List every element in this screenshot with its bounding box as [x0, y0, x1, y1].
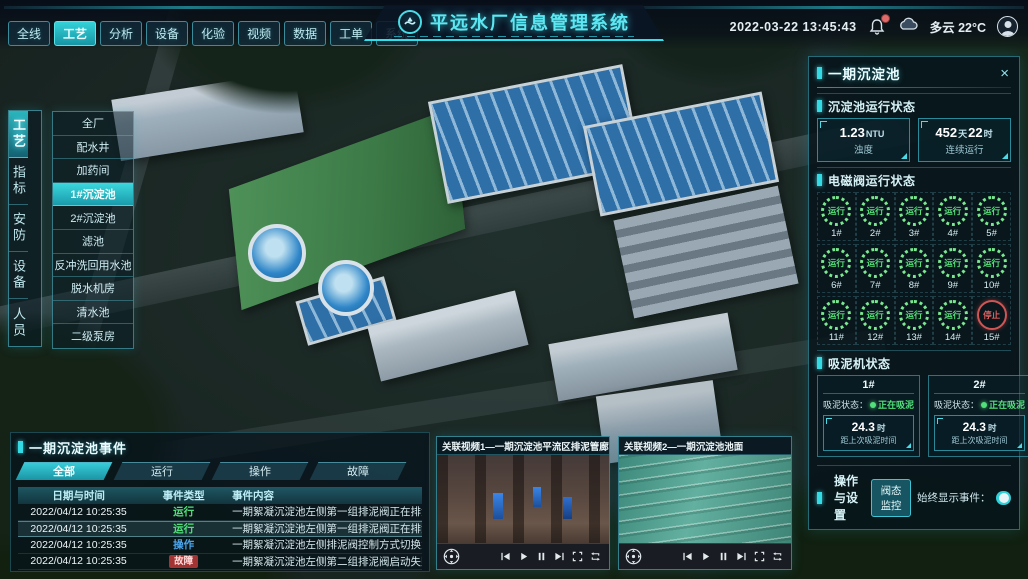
mud-machine-card: 1# 吸泥状态： 正在吸泥 24.3时 距上次吸泥时间	[817, 375, 920, 457]
event-filter-tab[interactable]: 运行	[118, 462, 206, 480]
run-status-stats: 1.23NTU 浊度 452天22时 连续运行	[817, 118, 1011, 162]
process-menu-item[interactable]: 全厂	[53, 112, 133, 136]
valve-monitor-button[interactable]: 阀态监控	[871, 479, 911, 517]
process-menu-item[interactable]: 清水池	[53, 301, 133, 325]
process-menu-item[interactable]: 2#沉淀池	[53, 206, 133, 230]
side-tab[interactable]: 人员	[9, 299, 28, 346]
valve-ring-icon: 运行	[938, 196, 968, 226]
title-marker	[18, 441, 23, 453]
mud-machine-section: 吸泥机状态 1# 吸泥状态： 正在吸泥 24.3时 距上次吸泥时间	[817, 350, 1011, 457]
ptz-pad-icon[interactable]	[443, 548, 460, 565]
top-right-cluster: 2022-03-22 13:45:43 多云 22°C	[730, 16, 1018, 37]
stat-card: 452天22时 连续运行	[918, 118, 1011, 162]
valve-section: 电磁阀运行状态 运行 1# 运行 2#	[817, 167, 1011, 345]
valve-status: 运行	[944, 309, 961, 321]
video-feed	[437, 455, 609, 543]
valve-id: 5#	[986, 228, 997, 239]
status-dot-icon	[981, 402, 987, 408]
process-menu-item[interactable]: 滤池	[53, 230, 133, 254]
status-label: 吸泥状态：	[823, 398, 868, 411]
status-label: 吸泥状态：	[934, 398, 979, 411]
valve-cell[interactable]: 运行 3#	[895, 192, 934, 241]
close-icon[interactable]: ×	[998, 66, 1011, 81]
valve-status: 运行	[867, 257, 884, 269]
stat-label: 浊度	[854, 142, 873, 156]
panel-title: 一期沉淀池	[828, 63, 998, 83]
event-type-badge: 操作	[173, 537, 194, 552]
valve-status: 运行	[905, 309, 922, 321]
status-dot-icon	[870, 402, 876, 408]
nav-tab[interactable]: 化验	[192, 21, 234, 46]
mud-machine-card: 2# 吸泥状态： 正在吸泥 24.3时 距上次吸泥时间	[928, 375, 1028, 457]
process-menu-item[interactable]: 1#沉淀池	[53, 183, 133, 207]
play-icon[interactable]	[700, 551, 711, 562]
valve-ring-icon: 运行	[938, 248, 968, 278]
event-content: 一期絮凝沉淀池左侧排泥阀控制方式切换为手动	[228, 537, 422, 552]
ptz-pad-icon[interactable]	[625, 548, 642, 565]
valve-id: 4#	[948, 228, 959, 239]
event-time: 2022/04/12 10:25:35	[18, 506, 139, 518]
mud-time-label: 距上次吸泥时间	[841, 435, 897, 446]
app-logo-icon	[398, 10, 422, 34]
section-marker	[817, 100, 822, 112]
valve-id: 13#	[906, 332, 922, 343]
nav-tab[interactable]: 分析	[100, 21, 142, 46]
valve-ring-icon: 运行	[899, 248, 929, 278]
valve-status: 运行	[905, 205, 922, 217]
valve-cell[interactable]: 运行 5#	[972, 192, 1011, 241]
valve-cell[interactable]: 运行 2#	[856, 192, 895, 241]
valve-status: 运行	[828, 205, 845, 217]
machine-id: 2#	[934, 379, 1025, 394]
valve-id: 1#	[831, 228, 842, 239]
section-title: 操作与设置	[834, 472, 865, 523]
section-title: 吸泥机状态	[828, 355, 891, 372]
detail-panel: 一期沉淀池 × 沉淀池运行状态 1.23NTU 浊度	[808, 56, 1020, 530]
event-content: 一期絮凝沉淀池左侧第二组排泥阀启动失败	[228, 554, 422, 569]
event-time: 2022/04/12 10:25:35	[18, 555, 139, 567]
valve-status: 运行	[828, 309, 845, 321]
valve-id: 3#	[909, 228, 920, 239]
video-title: 关联视频2—一期沉淀池池面	[619, 437, 791, 455]
col-header-content: 事件内容	[228, 488, 422, 503]
valve-id: 7#	[870, 280, 881, 291]
valve-cell[interactable]: 运行 10#	[972, 244, 1011, 293]
valve-cell[interactable]: 运行 6#	[817, 244, 856, 293]
valve-ring-icon: 运行	[821, 248, 851, 278]
valve-ring-icon: 运行	[821, 300, 851, 330]
nav-tab[interactable]: 全线	[8, 21, 50, 46]
event-type-badge: 运行	[173, 521, 194, 536]
valve-cell[interactable]: 运行 12#	[856, 296, 895, 345]
user-avatar-icon[interactable]	[997, 16, 1018, 37]
col-header-type: 事件类型	[139, 488, 228, 503]
main-nav: 全线 工艺 分析 设备 化验 视频 数据 工单 系统	[8, 21, 418, 46]
events-title: 一期沉淀池事件	[29, 438, 127, 457]
section-marker	[817, 492, 822, 504]
status-value: 正在吸泥	[878, 398, 914, 411]
valve-cell[interactable]: 运行 8#	[895, 244, 934, 293]
alert-badge	[881, 14, 890, 23]
skip-forward-icon[interactable]	[736, 551, 747, 562]
process-menu-item[interactable]: 配水井	[53, 136, 133, 160]
scada-dashboard: 全线 工艺 分析 设备 化验 视频 数据 工单 系统 平远水厂信息管理系统	[0, 0, 1028, 579]
events-table: 日期与时间 事件类型 事件内容 2022/04/12 10:25:35 运行 一…	[18, 487, 422, 570]
process-menu-item[interactable]: 加药间	[53, 159, 133, 183]
loop-icon[interactable]	[772, 551, 783, 562]
valve-id: 8#	[909, 280, 920, 291]
event-filter-tab[interactable]: 故障	[314, 462, 402, 480]
bell-icon[interactable]	[868, 18, 886, 36]
play-icon[interactable]	[518, 551, 529, 562]
side-tab[interactable]: 安防	[9, 205, 28, 252]
valve-cell[interactable]: 运行 14#	[933, 296, 972, 345]
nav-tab[interactable]: 工艺	[54, 21, 96, 46]
valve-status: 运行	[983, 257, 1000, 269]
fullscreen-icon[interactable]	[572, 551, 583, 562]
valve-ring-icon: 运行	[899, 196, 929, 226]
valve-grid: 运行 1# 运行 2# 运行	[817, 192, 1011, 345]
nav-tab[interactable]: 视频	[238, 21, 280, 46]
mud-machine-cards: 1# 吸泥状态： 正在吸泥 24.3时 距上次吸泥时间 2#	[817, 375, 1011, 457]
datetime-text: 2022-03-22 13:45:43	[730, 20, 857, 34]
title-marker	[817, 67, 822, 79]
side-tab[interactable]: 工艺	[9, 111, 28, 158]
section-title: 沉淀池运行状态	[828, 98, 916, 115]
stat-label: 连续运行	[945, 142, 983, 156]
status-value: 正在吸泥	[989, 398, 1025, 411]
valve-status: 停止	[983, 309, 1000, 321]
event-content: 一期絮凝沉淀池左侧第一组排泥阀正在排泥	[228, 521, 422, 536]
loop-icon[interactable]	[590, 551, 601, 562]
section-marker	[817, 357, 822, 369]
skip-back-icon[interactable]	[682, 551, 693, 562]
nav-tab[interactable]: 设备	[146, 21, 188, 46]
event-content: 一期絮凝沉淀池左侧第一组排泥阀正在排泥	[228, 504, 422, 519]
video-controls	[619, 543, 791, 569]
title-banner: 平远水厂信息管理系统	[364, 5, 664, 41]
valve-id: 6#	[831, 280, 842, 291]
event-row[interactable]: 2022/04/12 10:25:35 操作 一期絮凝沉淀池左侧排泥阀控制方式切…	[18, 537, 422, 554]
valve-status: 运行	[983, 205, 1000, 217]
valve-status: 运行	[867, 205, 884, 217]
events-panel: 一期沉淀池事件 全部 运行 操作 故障	[10, 432, 430, 572]
valve-id: 11#	[829, 332, 844, 343]
valve-status: 运行	[828, 257, 845, 269]
settings-section: 操作与设置 阀态监控 始终显示事件：	[817, 465, 1011, 523]
valve-ring-icon: 运行	[821, 196, 851, 226]
events-rows: 2022/04/12 10:25:35 运行 一期絮凝沉淀池左侧第一组排泥阀正在…	[18, 504, 422, 570]
run-status-section: 沉淀池运行状态 1.23NTU 浊度 452天22时	[817, 93, 1011, 162]
valve-id: 15#	[984, 332, 1000, 343]
valve-status: 运行	[905, 257, 922, 269]
stat-card: 1.23NTU 浊度	[817, 118, 910, 162]
valve-cell[interactable]: 运行 7#	[856, 244, 895, 293]
pause-icon[interactable]	[718, 551, 729, 562]
valve-ring-icon: 运行	[977, 248, 1007, 278]
show-events-toggle[interactable]	[996, 491, 1011, 505]
side-tab[interactable]: 设备	[9, 252, 28, 299]
valve-ring-icon: 运行	[938, 300, 968, 330]
page-title: 平远水厂信息管理系统	[430, 9, 630, 35]
mud-time-box: 24.3时 距上次吸泥时间	[823, 415, 914, 451]
nav-tab[interactable]: 数据	[284, 21, 326, 46]
process-menu-item[interactable]: 脱水机房	[53, 277, 133, 301]
video-panels: 关联视频1—一期沉淀池平流区排泥管廊	[436, 436, 792, 570]
valve-cell[interactable]: 停止 15#	[972, 296, 1011, 345]
top-bar: 全线 工艺 分析 设备 化验 视频 数据 工单 系统 平远水厂信息管理系统	[0, 0, 1028, 50]
nav-tab[interactable]: 工单	[330, 21, 372, 46]
skip-back-icon[interactable]	[500, 551, 511, 562]
process-menu-item[interactable]: 二级泵房	[53, 324, 133, 348]
event-filter-tab[interactable]: 全部	[20, 462, 108, 480]
process-menu: 全厂 配水井 加药间 1#沉淀池 2#沉淀池 滤池 反冲洗回用水池 脱水机房 清…	[52, 111, 134, 349]
events-table-header: 日期与时间 事件类型 事件内容	[18, 487, 422, 504]
event-type-badge: 故障	[169, 555, 198, 568]
event-type-badge: 运行	[173, 504, 194, 519]
valve-status: 运行	[867, 309, 884, 321]
video-panel: 关联视频1—一期沉淀池平流区排泥管廊	[436, 436, 610, 570]
valve-ring-icon: 运行	[860, 248, 890, 278]
video-panel: 关联视频2—一期沉淀池池面	[618, 436, 792, 570]
valve-status: 运行	[944, 257, 961, 269]
mud-time-label: 距上次吸泥时间	[952, 435, 1008, 446]
valve-cell[interactable]: 运行 9#	[933, 244, 972, 293]
toggle-label: 始终显示事件：	[917, 490, 991, 505]
side-tab-bar: 工艺 指标 安防 设备 人员	[8, 110, 42, 347]
valve-ring-icon: 停止	[977, 300, 1007, 330]
video-title: 关联视频1—一期沉淀池平流区排泥管廊	[437, 437, 609, 455]
valve-cell[interactable]: 运行 13#	[895, 296, 934, 345]
event-row[interactable]: 2022/04/12 10:25:35 运行 一期絮凝沉淀池左侧第一组排泥阀正在…	[18, 504, 422, 521]
valve-ring-icon: 运行	[860, 196, 890, 226]
weather-text: 多云 22°C	[930, 17, 986, 36]
valve-ring-icon: 运行	[860, 300, 890, 330]
valve-cell[interactable]: 运行 1#	[817, 192, 856, 241]
video-feed	[619, 455, 791, 543]
valve-id: 14#	[945, 332, 961, 343]
col-header-time: 日期与时间	[18, 488, 139, 503]
event-row[interactable]: 2022/04/12 10:25:35 故障 一期絮凝沉淀池左侧第二组排泥阀启动…	[18, 554, 422, 571]
valve-cell[interactable]: 运行 4#	[933, 192, 972, 241]
mud-time-box: 24.3时 距上次吸泥时间	[934, 415, 1025, 451]
machine-id: 1#	[823, 379, 914, 394]
side-tab[interactable]: 指标	[9, 158, 28, 205]
section-marker	[817, 174, 822, 186]
valve-id: 2#	[870, 228, 881, 239]
valve-id: 12#	[867, 332, 883, 343]
event-time: 2022/04/12 10:25:35	[18, 523, 139, 535]
valve-status: 运行	[944, 205, 961, 217]
event-filter-tabs: 全部 运行 操作 故障	[18, 462, 422, 480]
event-time: 2022/04/12 10:25:35	[18, 539, 139, 551]
valve-id: 9#	[948, 280, 959, 291]
process-menu-item[interactable]: 反冲洗回用水池	[53, 254, 133, 278]
skip-forward-icon[interactable]	[554, 551, 565, 562]
video-controls	[437, 543, 609, 569]
fullscreen-icon[interactable]	[754, 551, 765, 562]
divider	[817, 87, 1011, 88]
section-title: 电磁阀运行状态	[828, 172, 916, 189]
event-row[interactable]: 2022/04/12 10:25:35 运行 一期絮凝沉淀池左侧第一组排泥阀正在…	[18, 521, 422, 538]
valve-cell[interactable]: 运行 11#	[817, 296, 856, 345]
valve-ring-icon: 运行	[977, 196, 1007, 226]
valve-ring-icon: 运行	[899, 300, 929, 330]
event-filter-tab[interactable]: 操作	[216, 462, 304, 480]
valve-id: 10#	[984, 280, 1000, 291]
pause-icon[interactable]	[536, 551, 547, 562]
cloud-icon	[897, 16, 919, 37]
